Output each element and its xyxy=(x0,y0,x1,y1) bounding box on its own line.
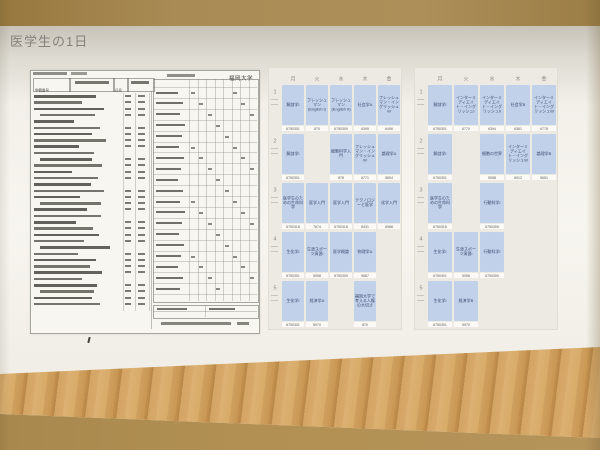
credit-value xyxy=(125,101,131,103)
timetable-slot: 解剖学I6750301 xyxy=(427,134,453,183)
room-code: 5058 xyxy=(462,274,470,278)
course-cell: インターミディエイト・イングリッシュII xyxy=(480,85,504,125)
grade-row-label xyxy=(156,179,178,181)
course-cell: フレッシュマン・イングリッシュW xyxy=(354,134,376,174)
day-header-3: 水 xyxy=(479,70,505,85)
timetable-slot: フレッシュマン (English II)6750309 xyxy=(329,85,353,134)
course-name-line xyxy=(34,303,100,306)
course-cell: 医学生のための生命科学 xyxy=(428,183,452,223)
grid-line xyxy=(153,98,257,99)
timetable-slot xyxy=(505,281,531,330)
course-title: インターミディエイト・イングリッシュII xyxy=(481,96,504,114)
credit-value xyxy=(125,108,131,110)
room-code: 6988 xyxy=(385,225,393,229)
period-label: 4 xyxy=(269,232,281,281)
timetable-slot xyxy=(305,134,329,183)
room-code: 6771 xyxy=(361,176,369,180)
course-name-line xyxy=(34,265,90,268)
course-title: 生化学I xyxy=(429,250,452,254)
timetable-slot: 論理学A5654 xyxy=(377,134,401,183)
course-title: 経済学B xyxy=(455,299,478,303)
course-cell: フレッシュマン (English II) xyxy=(330,85,352,125)
room-code: 6912 xyxy=(514,176,522,180)
grade-mark xyxy=(191,256,195,258)
timetable-slot xyxy=(329,281,353,330)
room-code: 6496 xyxy=(385,127,393,131)
period-label: 1 xyxy=(415,85,427,134)
course-cell: 経済学A xyxy=(306,281,328,321)
room-code-chip: 6750309 xyxy=(330,273,352,278)
timetable-slot: インターミディエイト・イングリッシュW6778 xyxy=(531,85,557,134)
student-id-label-box: 学籍番号 xyxy=(33,78,71,92)
grid-line xyxy=(153,294,257,295)
room-code-chip: 8431 xyxy=(354,224,376,229)
grade-value xyxy=(138,227,145,229)
grade-mark xyxy=(225,136,229,138)
grade-value xyxy=(138,234,145,236)
course-cell: 細胞科学入門 xyxy=(330,134,352,174)
credit-value xyxy=(125,95,131,97)
period-label: 4 xyxy=(415,232,427,281)
course-title: テクノロジーと医学 xyxy=(354,199,376,208)
grade-mark xyxy=(208,277,212,279)
course-title: インターミディエイト・イングリッシュW xyxy=(507,145,530,163)
course-name-line xyxy=(40,158,92,161)
course-title: 医学入門 xyxy=(330,201,352,205)
timetable-slot: 医学生のための生命科学6750318 xyxy=(427,183,453,232)
period-label: 2 xyxy=(269,134,281,183)
course-name-line xyxy=(34,259,96,262)
credit-value xyxy=(125,114,131,116)
grade-mark xyxy=(216,288,220,290)
course-name-line xyxy=(34,297,92,300)
timetable-slot: 経済学A5970 xyxy=(305,281,329,330)
credit-value xyxy=(125,290,131,292)
room-code-chip: 6750301 xyxy=(282,126,304,131)
course-name-line xyxy=(34,177,98,180)
course-cell: 社会学A xyxy=(354,85,376,125)
grid-line xyxy=(189,79,190,301)
timetable-slot: 論理学B5651 xyxy=(531,134,557,183)
grid-line xyxy=(153,283,257,284)
timetable-slot xyxy=(453,183,479,232)
period-label: 5 xyxy=(269,281,281,330)
grade-value xyxy=(138,271,145,273)
transcript-title-line xyxy=(71,72,87,75)
room-code-chip: 870 xyxy=(354,322,376,327)
grade-mark xyxy=(241,212,245,214)
course-cell: 行動科学I xyxy=(480,183,504,223)
course-cell: フレッシュマン (English I) xyxy=(306,85,328,125)
course-cell: 経済学B xyxy=(454,281,478,321)
credit-value xyxy=(125,196,131,198)
grade-mark xyxy=(241,103,245,105)
grade-mark xyxy=(199,266,203,268)
lecture-room-photo: 医学生の1日 福岡大学 学籍番号 氏名 月火水木金1解剖学I6750301フレッ… xyxy=(0,0,600,450)
course-title: 経済学A xyxy=(306,299,328,303)
room-code: 6750309 xyxy=(334,127,348,131)
course-name-line xyxy=(34,171,72,174)
course-cell: 化学入門 xyxy=(378,183,400,223)
course-cell: 医学生のための生命科学 xyxy=(282,183,304,223)
grid-line xyxy=(153,152,257,153)
grade-mark xyxy=(233,147,237,149)
course-cell: インターミディエイト・イングリッシュW xyxy=(506,134,530,174)
course-name-line xyxy=(40,246,110,249)
course-name-line xyxy=(34,127,100,130)
timetable-slot: 生化学I6750301 xyxy=(281,232,305,281)
grade-value xyxy=(138,108,145,110)
timetable-slot: 医学入門6750318 xyxy=(329,183,353,232)
right-shadow xyxy=(586,0,600,450)
period-time-mark xyxy=(271,148,278,149)
course-name-line xyxy=(34,271,102,274)
course-title: 細胞の世界 xyxy=(481,152,504,156)
timetable-slot: 生化学I6750301 xyxy=(427,281,453,330)
room-code-chip: 7674 xyxy=(306,224,328,229)
grade-row-label xyxy=(156,168,181,170)
grade-grid-caption xyxy=(167,74,195,77)
left-shadow xyxy=(0,0,10,450)
room-code-chip: 6750301 xyxy=(428,175,452,180)
timetable-header-row: 月火水木金 xyxy=(415,70,557,85)
timetable-slot: インターミディエイト・イングリッシュW6912 xyxy=(505,134,531,183)
course-name-line xyxy=(34,278,82,281)
room-code: 5651 xyxy=(540,176,548,180)
transcript-caption xyxy=(161,322,231,325)
course-name-line xyxy=(34,221,76,224)
course-title: 論理学A xyxy=(378,152,400,156)
grade-value xyxy=(138,253,145,255)
grid-line xyxy=(153,261,257,262)
grade-mark xyxy=(250,223,254,225)
room-code: 6381 xyxy=(514,127,522,131)
timetable-row: 3医学生のための生命科学6750318医学入門7674医学入門6750318テク… xyxy=(269,183,401,232)
credit-value xyxy=(125,221,131,223)
grade-row-label xyxy=(156,288,180,290)
transcript-caption xyxy=(237,322,249,325)
grade-value xyxy=(138,208,145,210)
timetable-header-row: 月火水木金 xyxy=(269,70,401,85)
period-time-mark xyxy=(271,300,278,301)
room-code-chip: 878 xyxy=(330,175,352,180)
credit-value xyxy=(125,190,131,192)
credit-value xyxy=(125,265,131,267)
period-time-mark xyxy=(417,246,424,247)
timetable-row: 1解剖学I6750301インターミディエイト・イングリッシュI6770インターミ… xyxy=(415,85,557,134)
grade-row-label xyxy=(156,146,179,148)
timetable-row: 2解剖学I6750301細胞の世界5058インターミディエイト・イングリッシュW… xyxy=(415,134,557,183)
room-code: 6778 xyxy=(540,127,548,131)
timetable-row: 1解剖学I6750301フレッシュマン (English I)870フレッシュマ… xyxy=(269,85,401,134)
grade-row-label xyxy=(156,113,180,115)
credit-value xyxy=(125,145,131,147)
day-header-label: 金 xyxy=(382,74,397,82)
timetable-slot xyxy=(531,183,557,232)
credit-value xyxy=(125,271,131,273)
grade-value xyxy=(138,259,145,261)
room-code-chip: 6750318 xyxy=(330,224,352,229)
course-title: 生化学I xyxy=(282,250,304,254)
grade-value xyxy=(138,265,145,267)
period-number: 5 xyxy=(270,285,280,291)
room-code: 6395 xyxy=(361,127,369,131)
period-time-mark xyxy=(271,99,278,100)
course-name-line xyxy=(34,139,106,142)
timetable-slot: 生化学I6750301 xyxy=(281,281,305,330)
grade-row-label xyxy=(156,135,182,137)
course-name-line xyxy=(34,253,78,256)
grid-line xyxy=(153,272,257,273)
period-time-mark xyxy=(417,104,424,105)
course-name-line xyxy=(34,183,91,186)
grade-mark xyxy=(233,201,237,203)
period-time-mark xyxy=(417,197,424,198)
day-header-3: 水 xyxy=(329,70,353,85)
credit-value xyxy=(125,284,131,286)
credit-value xyxy=(125,171,131,173)
timetable-slot: フレッシュマン・イングリッシュW6771 xyxy=(353,134,377,183)
course-cell: 論理学B xyxy=(532,134,556,174)
course-title: フレッシュマン (English I) xyxy=(306,98,328,111)
room-code-chip: 6771 xyxy=(354,175,376,180)
grade-value xyxy=(138,114,145,116)
course-name-line xyxy=(34,164,102,167)
room-code: 6750301 xyxy=(433,323,447,327)
day-header-label: 木 xyxy=(511,74,526,82)
room-code: 5970 xyxy=(462,323,470,327)
course-title: 福岡大学で考える人権の大切さ xyxy=(354,294,376,307)
transcript-document: 福岡大学 学籍番号 氏名 xyxy=(30,70,260,334)
room-code-chip: 5058 xyxy=(454,273,478,278)
course-cell: 医学入門 xyxy=(330,183,352,223)
timetable-slot: 生涯スポーツ演習I5058 xyxy=(453,232,479,281)
course-title: 行動科学I xyxy=(481,250,504,254)
course-name-line xyxy=(34,190,104,193)
day-header-2: 火 xyxy=(305,70,329,85)
grade-value xyxy=(138,139,145,141)
day-header-1: 月 xyxy=(427,70,453,85)
timetable-slot xyxy=(505,183,531,232)
grade-mark xyxy=(250,168,254,170)
course-title: 社会学A xyxy=(354,103,376,107)
course-title: 生涯スポーツ演習I xyxy=(306,248,328,257)
course-name-line xyxy=(34,284,97,287)
grade-value xyxy=(138,127,145,129)
period-time-mark xyxy=(417,99,424,100)
transcript-text-line xyxy=(75,81,109,84)
course-cell: 生涯スポーツ演習I xyxy=(306,232,328,272)
course-title: 生化学I xyxy=(282,299,304,303)
center-divider xyxy=(151,91,152,329)
room-code-chip: 6750309 xyxy=(480,273,504,278)
day-header-label: 水 xyxy=(334,74,349,82)
course-title: インターミディエイト・イングリッシュW xyxy=(533,96,556,114)
grade-row-label xyxy=(156,211,185,213)
grid-line xyxy=(153,196,257,197)
grade-value xyxy=(138,221,145,223)
timetable-slot: 細胞科学入門878 xyxy=(329,134,353,183)
grade-mark xyxy=(241,157,245,159)
timetable-slot xyxy=(505,232,531,281)
course-cell: 生涯スポーツ演習I xyxy=(454,232,478,272)
grade-value xyxy=(138,297,145,299)
ceiling-beam xyxy=(0,0,600,26)
room-code: 6750301 xyxy=(433,127,447,131)
timetable-slot: インターミディエイト・イングリッシュI6770 xyxy=(453,85,479,134)
room-code: 5058 xyxy=(313,274,321,278)
course-title: 解剖学I xyxy=(429,152,452,156)
grade-value xyxy=(138,171,145,173)
day-header-4: 木 xyxy=(505,70,531,85)
day-header-label: 月 xyxy=(286,74,301,82)
course-name-line xyxy=(40,290,94,293)
timetable-slot: 物理学A5687 xyxy=(353,232,377,281)
grade-value xyxy=(138,196,145,198)
room-code: 6750301 xyxy=(286,127,300,131)
timetable-slot: フレッシュマン・イングリッシュW6496 xyxy=(377,85,401,134)
credit-value xyxy=(125,208,131,210)
room-code-chip: 6750301 xyxy=(282,273,304,278)
course-name-line xyxy=(34,133,92,136)
grade-mark xyxy=(199,157,203,159)
period-number: 1 xyxy=(270,89,280,95)
room-code-chip: 6395 xyxy=(354,126,376,131)
course-name-line xyxy=(34,215,101,218)
period-number: 4 xyxy=(416,236,426,242)
room-code-chip: 6750309 xyxy=(330,126,352,131)
grid-line xyxy=(153,87,257,88)
period-time-mark xyxy=(417,148,424,149)
course-cell: 解剖学I xyxy=(428,85,452,125)
room-code: 6750318 xyxy=(334,225,348,229)
course-title: 解剖学I xyxy=(282,152,304,156)
room-code: 878 xyxy=(338,176,344,180)
timetable-row: 5生化学I6750301経済学B5970 xyxy=(415,281,557,330)
room-code-chip: 5970 xyxy=(454,322,478,327)
grid-line xyxy=(153,120,257,121)
room-code-chip: 5058 xyxy=(306,273,328,278)
period-label: 5 xyxy=(415,281,427,330)
grade-mark xyxy=(191,147,195,149)
room-code: 7674 xyxy=(313,225,321,229)
course-title: 行動科学I xyxy=(481,201,504,205)
grade-value xyxy=(138,290,145,292)
room-code-chip: 6750301 xyxy=(282,322,304,327)
grid-line xyxy=(153,240,257,241)
room-code: 6750309 xyxy=(485,274,499,278)
grade-mark xyxy=(216,125,220,127)
course-cell: 医学概論 xyxy=(330,232,352,272)
room-code-chip: 5651 xyxy=(532,175,556,180)
room-code: 6770 xyxy=(462,127,470,131)
room-code-chip: 6750309 xyxy=(480,224,504,229)
course-name-line xyxy=(34,108,104,111)
timetable-slot: 化学入門6988 xyxy=(377,183,401,232)
timetable-row: 5生化学I6750301経済学A5970福岡大学で考える人権の大切さ870 xyxy=(269,281,401,330)
course-cell: 細胞の世界 xyxy=(480,134,504,174)
day-header-label: 木 xyxy=(358,74,373,82)
room-code: 6750318 xyxy=(286,225,300,229)
period-time-mark xyxy=(417,202,424,203)
timetable-slot: 解剖学I6750301 xyxy=(427,85,453,134)
credit-value xyxy=(125,164,131,166)
room-code: 6750301 xyxy=(433,274,447,278)
timetable-slot: 福岡大学で考える人権の大切さ870 xyxy=(353,281,377,330)
period-label: 2 xyxy=(415,134,427,183)
course-cell: 論理学A xyxy=(378,134,400,174)
course-cell: 行動科学I xyxy=(480,232,504,272)
course-cell: 福岡大学で考える人権の大切さ xyxy=(354,281,376,321)
timetable-slot: 行動科学I6750309 xyxy=(479,232,505,281)
room-code-chip: 6750301 xyxy=(428,322,452,327)
day-header-label: 水 xyxy=(485,74,500,82)
room-code-chip: 5654 xyxy=(378,175,400,180)
course-cell: インターミディエイト・イングリッシュI xyxy=(454,85,478,125)
room-code: 6750309 xyxy=(334,274,348,278)
transcript-text-line xyxy=(209,308,235,310)
grade-mark xyxy=(191,201,195,203)
course-cell: 解剖学I xyxy=(282,134,304,174)
timetable-slot: 医学生のための生命科学6750318 xyxy=(281,183,305,232)
grade-mark xyxy=(216,179,220,181)
course-cell: 社会学B xyxy=(506,85,530,125)
grade-row-label xyxy=(156,244,184,246)
period-number: 2 xyxy=(270,138,280,144)
grade-row-label xyxy=(156,255,181,257)
period-number: 2 xyxy=(416,138,426,144)
grid-line xyxy=(249,79,250,301)
room-code: 5687 xyxy=(361,274,369,278)
course-name-line xyxy=(34,240,84,243)
day-header-1: 月 xyxy=(281,70,305,85)
credit-value xyxy=(125,259,131,261)
credit-value xyxy=(125,127,131,129)
day-header-2: 火 xyxy=(453,70,479,85)
course-name-line xyxy=(34,120,74,123)
course-title: フレッシュマン (English II) xyxy=(330,98,352,111)
room-code: 6750301 xyxy=(286,274,300,278)
credit-value xyxy=(125,234,131,236)
grid-line xyxy=(153,174,257,175)
room-code: 6750318 xyxy=(433,225,447,229)
period-number: 5 xyxy=(416,285,426,291)
course-name-line xyxy=(34,227,93,230)
grid-line xyxy=(206,79,207,301)
course-title: インターミディエイト・イングリッシュI xyxy=(455,96,478,114)
period-time-mark xyxy=(271,153,278,154)
room-code-chip: 6912 xyxy=(506,175,530,180)
grade-value xyxy=(138,284,145,286)
transcript-text-line xyxy=(131,81,149,84)
course-title: 医学生のための生命科学 xyxy=(282,196,304,209)
course-cell: 生化学I xyxy=(282,281,304,321)
day-header-4: 木 xyxy=(353,70,377,85)
grade-row-label xyxy=(156,124,185,126)
course-title: 社会学B xyxy=(507,103,530,107)
course-title: 医学概論 xyxy=(330,250,352,254)
course-title: 解剖学I xyxy=(429,103,452,107)
grid-line xyxy=(215,79,216,301)
timetable-slot: 解剖学I6750301 xyxy=(281,85,305,134)
course-title: 生化学I xyxy=(429,299,452,303)
course-cell: テクノロジーと医学 xyxy=(354,183,376,223)
timetable-slot xyxy=(531,232,557,281)
day-header-5: 金 xyxy=(531,70,557,85)
grade-mark xyxy=(225,190,229,192)
grid-line xyxy=(205,305,206,317)
grade-value xyxy=(138,190,145,192)
